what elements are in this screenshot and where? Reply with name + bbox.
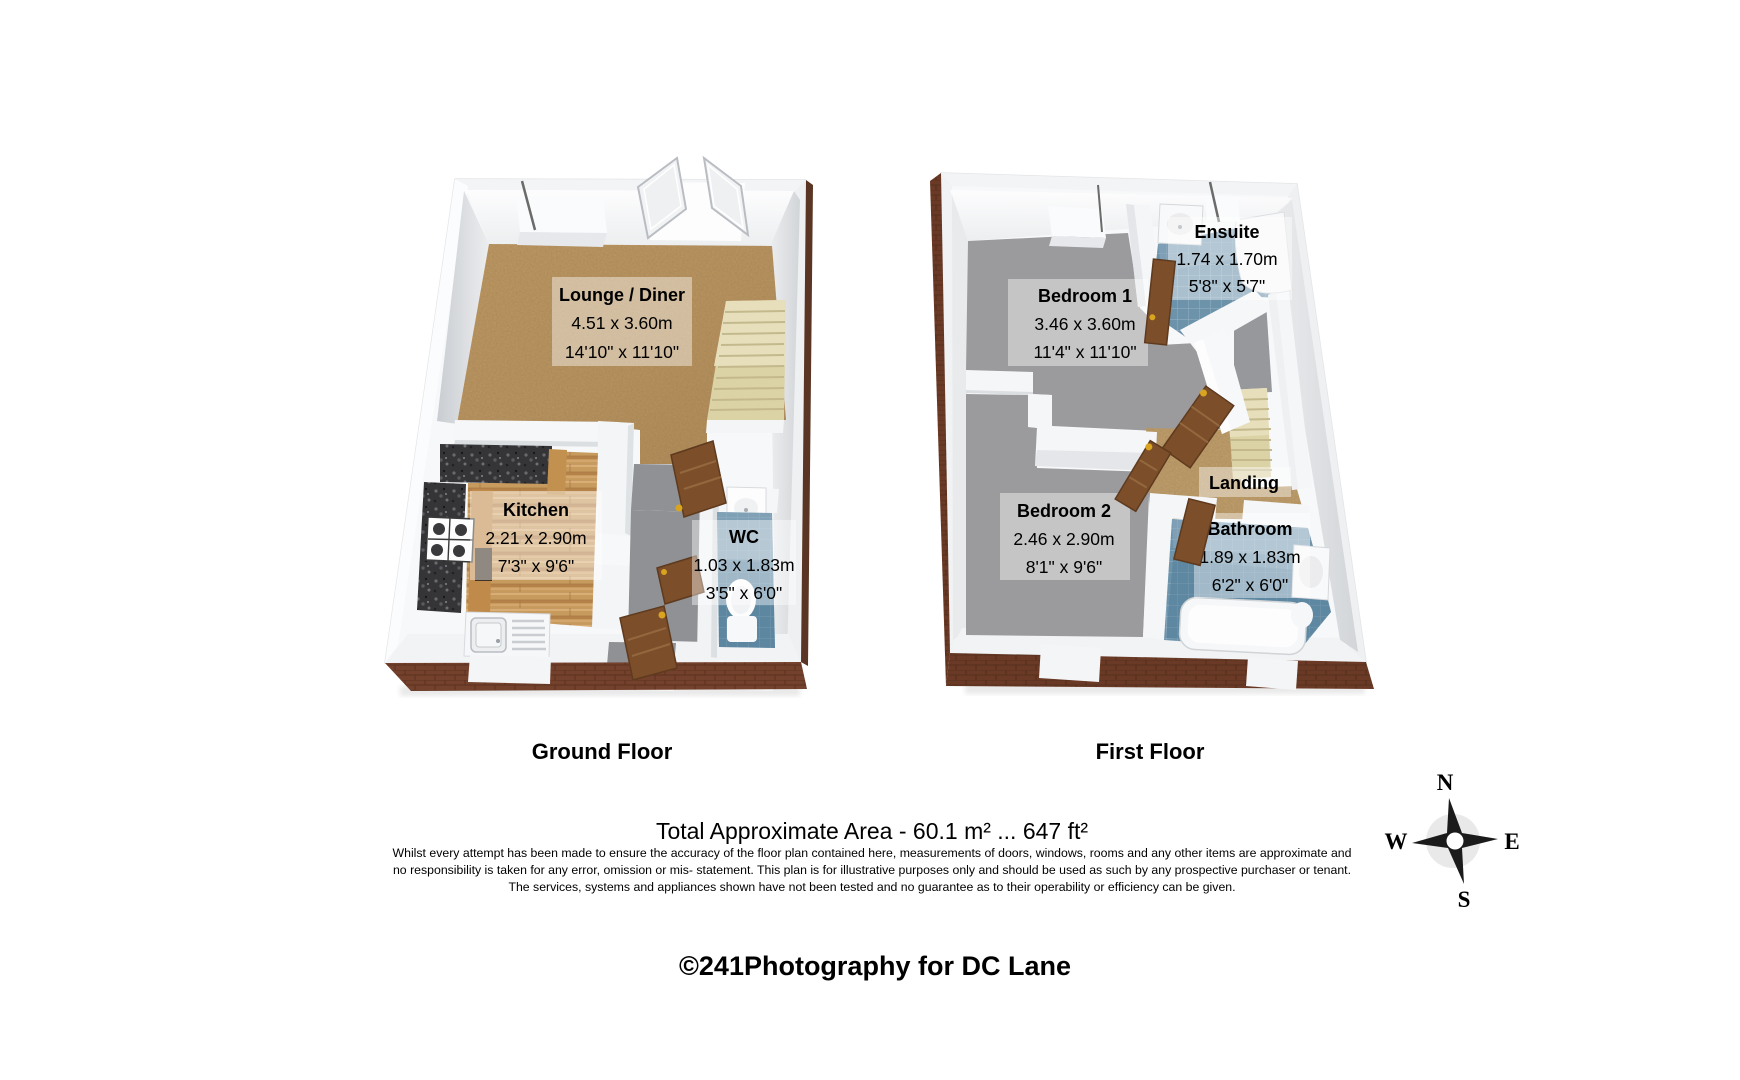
svg-text:2.46 x 2.90m: 2.46 x 2.90m <box>1013 529 1114 549</box>
svg-text:3'5" x 6'0": 3'5" x 6'0" <box>706 583 783 603</box>
svg-text:The services, systems and appl: The services, systems and appliances sho… <box>508 880 1235 894</box>
svg-text:5'8" x 5'7": 5'8" x 5'7" <box>1189 276 1266 296</box>
svg-text:14'10" x 11'10": 14'10" x 11'10" <box>565 342 679 362</box>
svg-text:1.03 x 1.83m: 1.03 x 1.83m <box>693 555 794 575</box>
svg-text:3.46 x 3.60m: 3.46 x 3.60m <box>1034 314 1135 334</box>
svg-text:Bedroom 1: Bedroom 1 <box>1038 286 1132 306</box>
svg-text:N: N <box>1437 770 1454 795</box>
svg-text:Bedroom 2: Bedroom 2 <box>1017 501 1111 521</box>
svg-text:2.21 x 2.90m: 2.21 x 2.90m <box>485 528 586 548</box>
svg-text:Kitchen: Kitchen <box>503 500 569 520</box>
svg-text:Ensuite: Ensuite <box>1194 222 1259 242</box>
svg-text:4.51 x 3.60m: 4.51 x 3.60m <box>571 313 672 333</box>
svg-text:no responsibility is taken for: no responsibility is taken for any error… <box>393 863 1351 877</box>
svg-text:Ground Floor: Ground Floor <box>532 739 673 764</box>
svg-text:W: W <box>1385 829 1408 854</box>
svg-text:8'1" x 9'6": 8'1" x 9'6" <box>1026 557 1103 577</box>
svg-text:Landing: Landing <box>1209 473 1279 493</box>
svg-text:Whilst every attempt has been: Whilst every attempt has been made to en… <box>393 846 1352 860</box>
svg-text:©241Photography for DC Lane: ©241Photography for DC Lane <box>679 951 1071 981</box>
svg-text:Bathroom: Bathroom <box>1208 519 1293 539</box>
svg-text:6'2" x 6'0": 6'2" x 6'0" <box>1212 575 1289 595</box>
svg-text:11'4" x 11'10": 11'4" x 11'10" <box>1033 342 1136 362</box>
svg-text:1.89 x 1.83m: 1.89 x 1.83m <box>1199 547 1300 567</box>
svg-text:7'3" x 9'6": 7'3" x 9'6" <box>498 556 575 576</box>
svg-text:E: E <box>1504 829 1519 854</box>
svg-text:S: S <box>1458 887 1471 912</box>
svg-text:1.74 x 1.70m: 1.74 x 1.70m <box>1176 249 1277 269</box>
svg-text:Lounge / Diner: Lounge / Diner <box>559 285 685 305</box>
svg-text:First Floor: First Floor <box>1096 739 1205 764</box>
svg-text:Total Approximate Area - 60.1: Total Approximate Area - 60.1 m² ... 647… <box>656 818 1088 844</box>
svg-text:WC: WC <box>729 527 759 547</box>
